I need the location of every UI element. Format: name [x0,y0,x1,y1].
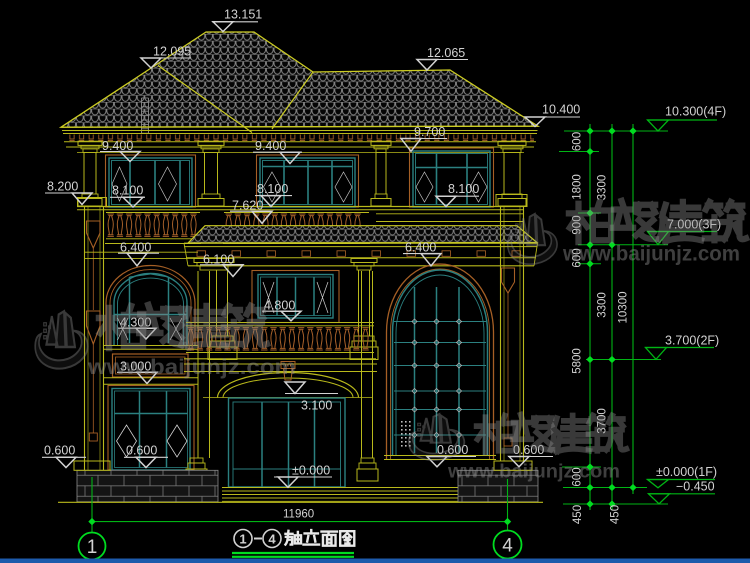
svg-text:0.600: 0.600 [44,444,75,458]
svg-text:−0.450: −0.450 [676,480,715,494]
svg-text:9.400: 9.400 [255,139,286,153]
svg-text:www.baijunjz.com: www.baijunjz.com [562,243,740,266]
svg-text:5800: 5800 [572,348,584,374]
svg-text:11960: 11960 [283,509,314,521]
svg-text:1: 1 [87,537,98,558]
svg-text:3300: 3300 [597,175,609,201]
svg-text:7.620: 7.620 [232,198,263,212]
svg-text:8.100: 8.100 [448,182,479,196]
svg-text:3.100: 3.100 [301,399,332,413]
svg-text:1: 1 [239,532,246,547]
svg-text:6.400: 6.400 [120,240,151,254]
svg-text:12.065: 12.065 [427,46,465,60]
svg-text:12.095: 12.095 [153,45,191,59]
svg-text:±0.000(1F): ±0.000(1F) [656,465,717,479]
svg-text:600: 600 [572,132,584,151]
svg-text:4: 4 [268,532,276,547]
svg-text:4.800: 4.800 [264,298,295,312]
svg-text:www.baijunjz.com: www.baijunjz.com [87,356,296,379]
svg-text:13.151: 13.151 [224,8,262,22]
svg-text:1800: 1800 [572,174,584,200]
svg-text:8.100: 8.100 [112,184,143,198]
svg-text:9.400: 9.400 [102,139,133,153]
svg-text:0.600: 0.600 [126,444,157,458]
svg-text:450: 450 [572,505,584,524]
svg-text:8.100: 8.100 [257,182,288,196]
svg-text:6.400: 6.400 [405,241,436,255]
svg-text:8.200: 8.200 [47,180,78,194]
svg-text:10300: 10300 [618,292,630,324]
svg-text:10.300(4F): 10.300(4F) [665,105,726,119]
svg-text:450: 450 [610,505,622,524]
svg-text:www.baijunjz.com: www.baijunjz.com [447,462,620,483]
svg-text:3300: 3300 [597,292,609,318]
svg-text:9.700: 9.700 [414,125,445,139]
svg-text:4: 4 [502,536,513,557]
svg-text:±0.000: ±0.000 [292,464,330,478]
svg-text:10.400: 10.400 [542,103,580,117]
svg-text:3.700(2F): 3.700(2F) [665,334,719,348]
